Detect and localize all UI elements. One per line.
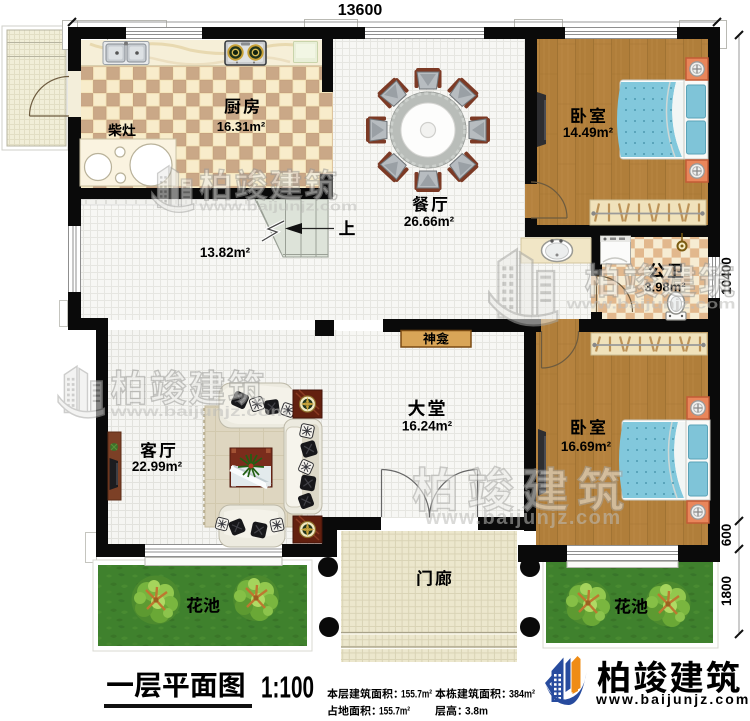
svg-text:13.82m²: 13.82m² <box>200 245 251 260</box>
svg-text:155.7m²: 155.7m² <box>401 689 432 701</box>
svg-text:16.69m²: 16.69m² <box>561 439 612 454</box>
svg-text:384m²: 384m² <box>509 689 535 701</box>
svg-text:1800: 1800 <box>719 576 734 606</box>
svg-text:www.baijunjz.com: www.baijunjz.com <box>109 403 288 419</box>
svg-text:600: 600 <box>719 524 734 547</box>
svg-text:13600: 13600 <box>338 2 383 19</box>
svg-text:3.8m: 3.8m <box>465 706 488 718</box>
svg-text:26.66m²: 26.66m² <box>404 214 455 229</box>
svg-text:22.99m²: 22.99m² <box>132 459 183 474</box>
svg-text:www.baijunjz.com: www.baijunjz.com <box>424 507 622 529</box>
svg-text:14.49m²: 14.49m² <box>563 125 614 140</box>
svg-text:www.baijunjz.com: www.baijunjz.com <box>565 295 735 311</box>
svg-text:16.24m²: 16.24m² <box>402 419 453 434</box>
svg-text:1:100: 1:100 <box>261 670 314 705</box>
svg-text:www.baijunjz.com: www.baijunjz.com <box>595 691 750 707</box>
svg-text:155.7m²: 155.7m² <box>379 706 410 718</box>
svg-text:16.31m²: 16.31m² <box>217 119 266 134</box>
svg-text:www.baijunjz.com: www.baijunjz.com <box>198 198 357 213</box>
